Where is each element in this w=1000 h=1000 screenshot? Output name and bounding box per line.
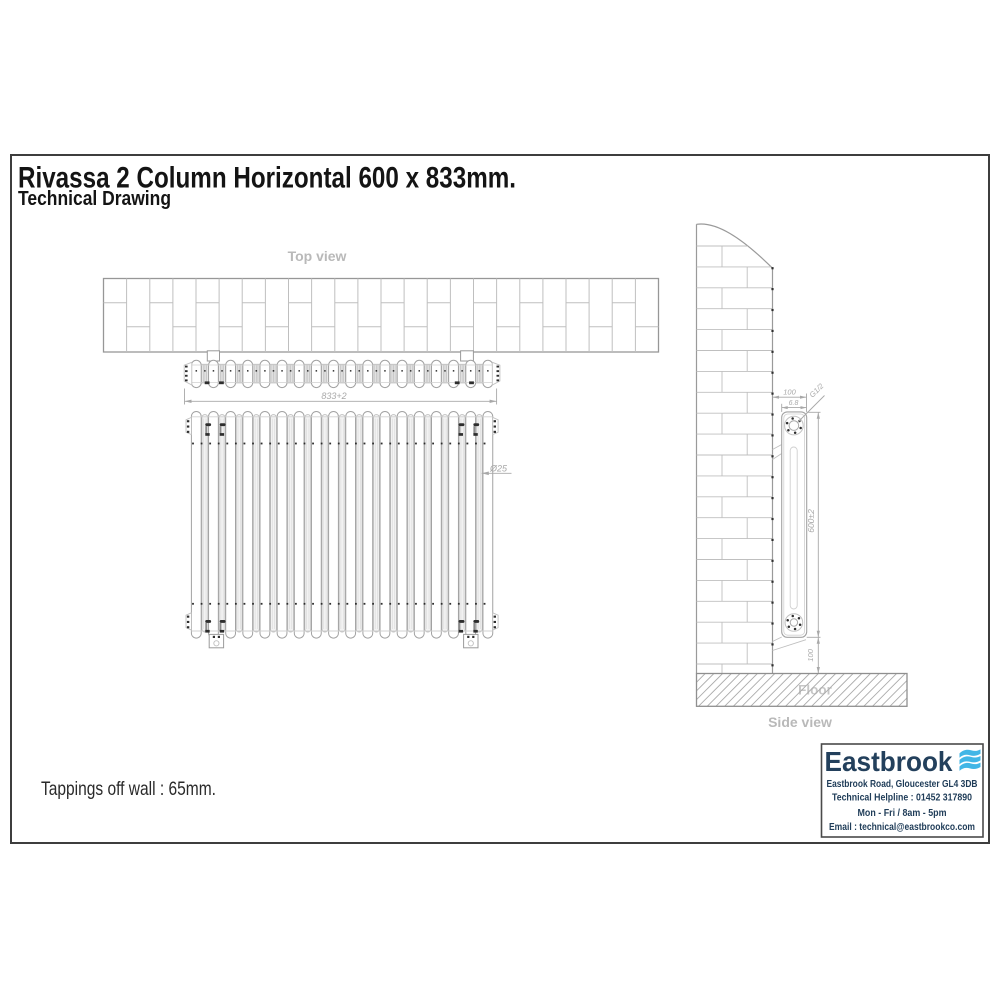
svg-text:Mon - Fri / 8am - 5pm: Mon - Fri / 8am - 5pm [858, 808, 947, 819]
svg-text:Side view: Side view [768, 714, 832, 730]
svg-text:Top view: Top view [288, 248, 347, 264]
svg-text:Eastbrook: Eastbrook [825, 746, 953, 777]
svg-text:600±2: 600±2 [806, 509, 816, 533]
svg-text:100: 100 [783, 388, 796, 397]
svg-text:Tappings off wall : 65mm.: Tappings off wall : 65mm. [41, 778, 216, 800]
svg-text:Ø25: Ø25 [489, 463, 508, 473]
svg-text:Email : technical@eastbrookco.: Email : technical@eastbrookco.com [829, 822, 975, 833]
svg-text:Eastbrook Road, Gloucester GL4: Eastbrook Road, Gloucester GL4 3DB [827, 779, 978, 790]
svg-text:Technical Helpline : 01452 317: Technical Helpline : 01452 317890 [832, 793, 972, 804]
svg-text:Technical Drawing: Technical Drawing [18, 188, 171, 210]
svg-text:833+2: 833+2 [321, 391, 346, 401]
svg-text:6.8: 6.8 [789, 400, 799, 407]
svg-text:100: 100 [806, 648, 815, 661]
